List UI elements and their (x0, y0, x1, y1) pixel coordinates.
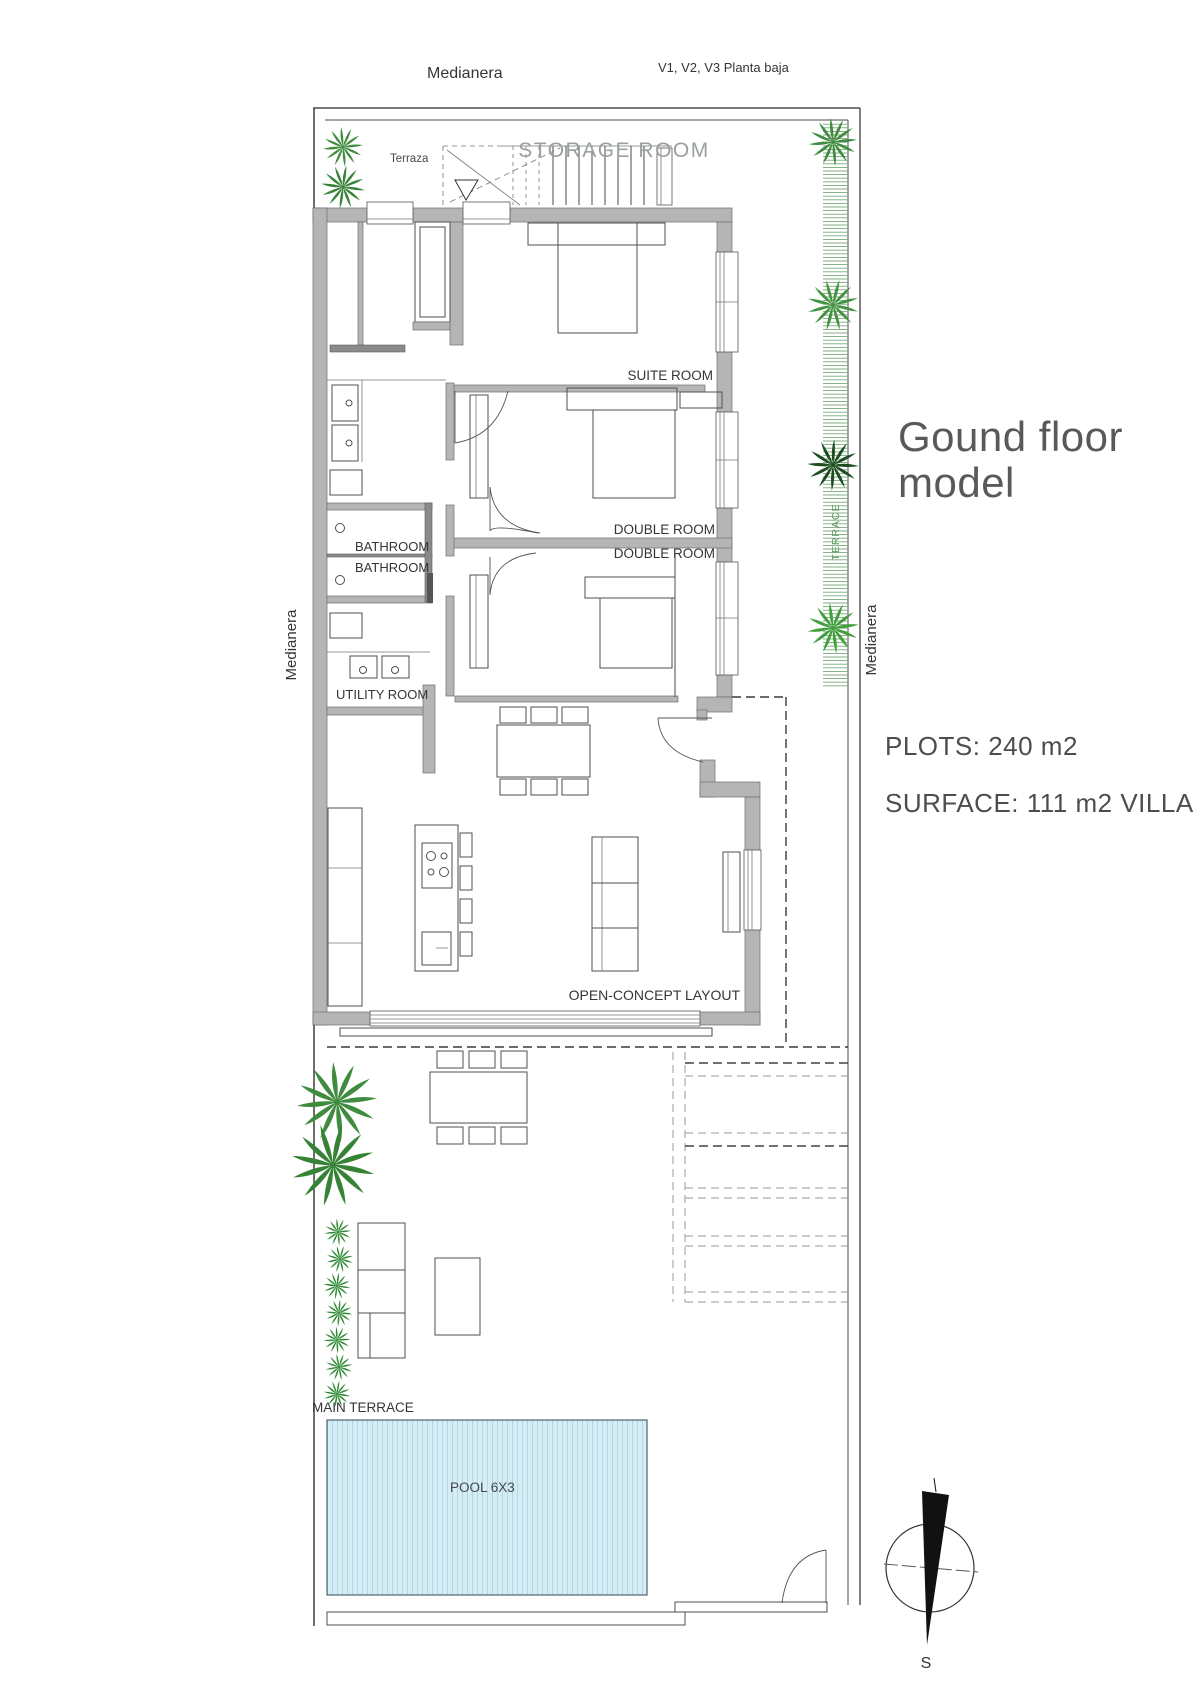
header-medianera-label: Medianera (427, 65, 503, 82)
medianera-right-label: Medianera (863, 604, 880, 676)
terrace-vertical-label: TERRACE (830, 503, 842, 560)
pool: POOL 6X3 (327, 1420, 647, 1595)
bathroom-1-label: BATHROOM (355, 539, 429, 554)
palm-tree-icon (317, 161, 370, 214)
palm-tree-icon (297, 1062, 377, 1142)
double-room-1-label: DOUBLE ROOM (614, 522, 715, 537)
plot-boundary (313, 108, 860, 1626)
palm-tree-icon (804, 436, 862, 494)
parking-area-lines (673, 1052, 848, 1302)
palm-shrub-icon (325, 1219, 352, 1246)
utility-room-label: UTILITY ROOM (336, 687, 428, 702)
floor-plan-sheet: Medianera V1, V2, V3 Planta baja TERRACE (0, 0, 1200, 1698)
side-terrace-strip: TERRACE (823, 121, 848, 688)
outdoor-dining-set (430, 1051, 527, 1144)
bathroom-2-label: BATHROOM (355, 560, 429, 575)
sheet-title-line2: model (898, 459, 1015, 506)
sheet-title-line1: Gound floor (898, 413, 1123, 460)
storage-room-label: STORAGE ROOM (518, 139, 709, 162)
kitchen-island (415, 825, 472, 971)
compass: S (884, 1478, 978, 1672)
palm-shrub-icon (323, 1297, 354, 1328)
house-walls (313, 202, 761, 1036)
double-room-1-bed (470, 388, 722, 498)
palm-shrub-icon (323, 1242, 358, 1277)
compass-needle (922, 1491, 949, 1645)
plots-value: PLOTS: 240 m2 (885, 731, 1078, 761)
suite-room-label: SUITE ROOM (627, 368, 713, 383)
palm-shrub-icon (318, 1267, 356, 1305)
surface-value: SURFACE: 111 m2 VILLA (885, 788, 1194, 818)
compass-south-label: S (921, 1655, 932, 1672)
pool-label: POOL 6X3 (450, 1480, 515, 1495)
double-room-2-label: DOUBLE ROOM (614, 546, 715, 561)
double-room-2-bed (470, 575, 675, 668)
info-panel: Gound floor model PLOTS: 240 m2 SURFACE:… (885, 413, 1194, 818)
palm-tree-icon (281, 1113, 386, 1218)
palm-tree-icon (323, 127, 363, 167)
garden-sofa (358, 1223, 405, 1358)
plan-reference-label: V1, V2, V3 Planta baja (658, 60, 790, 75)
living-sofa (592, 837, 638, 971)
suite-bed (528, 223, 665, 333)
kitchen-counter (328, 808, 362, 1006)
stairs-storage: STORAGE ROOM (443, 139, 710, 205)
main-terrace-label: MAIN TERRACE (312, 1400, 414, 1415)
dining-table-indoor (497, 707, 590, 795)
garden-coffee-table (435, 1258, 480, 1335)
bathroom-fixtures (327, 380, 430, 678)
terraza-label: Terraza (390, 153, 429, 165)
tv-unit (723, 852, 740, 932)
landscaping-palms (281, 118, 868, 1410)
floor-plan-drawing: Medianera V1, V2, V3 Planta baja TERRACE (0, 0, 1200, 1698)
palm-shrub-icon (318, 1321, 355, 1358)
open-concept-label: OPEN-CONCEPT LAYOUT (569, 987, 741, 1003)
palm-shrub-icon (320, 1348, 357, 1385)
medianera-left-label: Medianera (283, 609, 300, 681)
